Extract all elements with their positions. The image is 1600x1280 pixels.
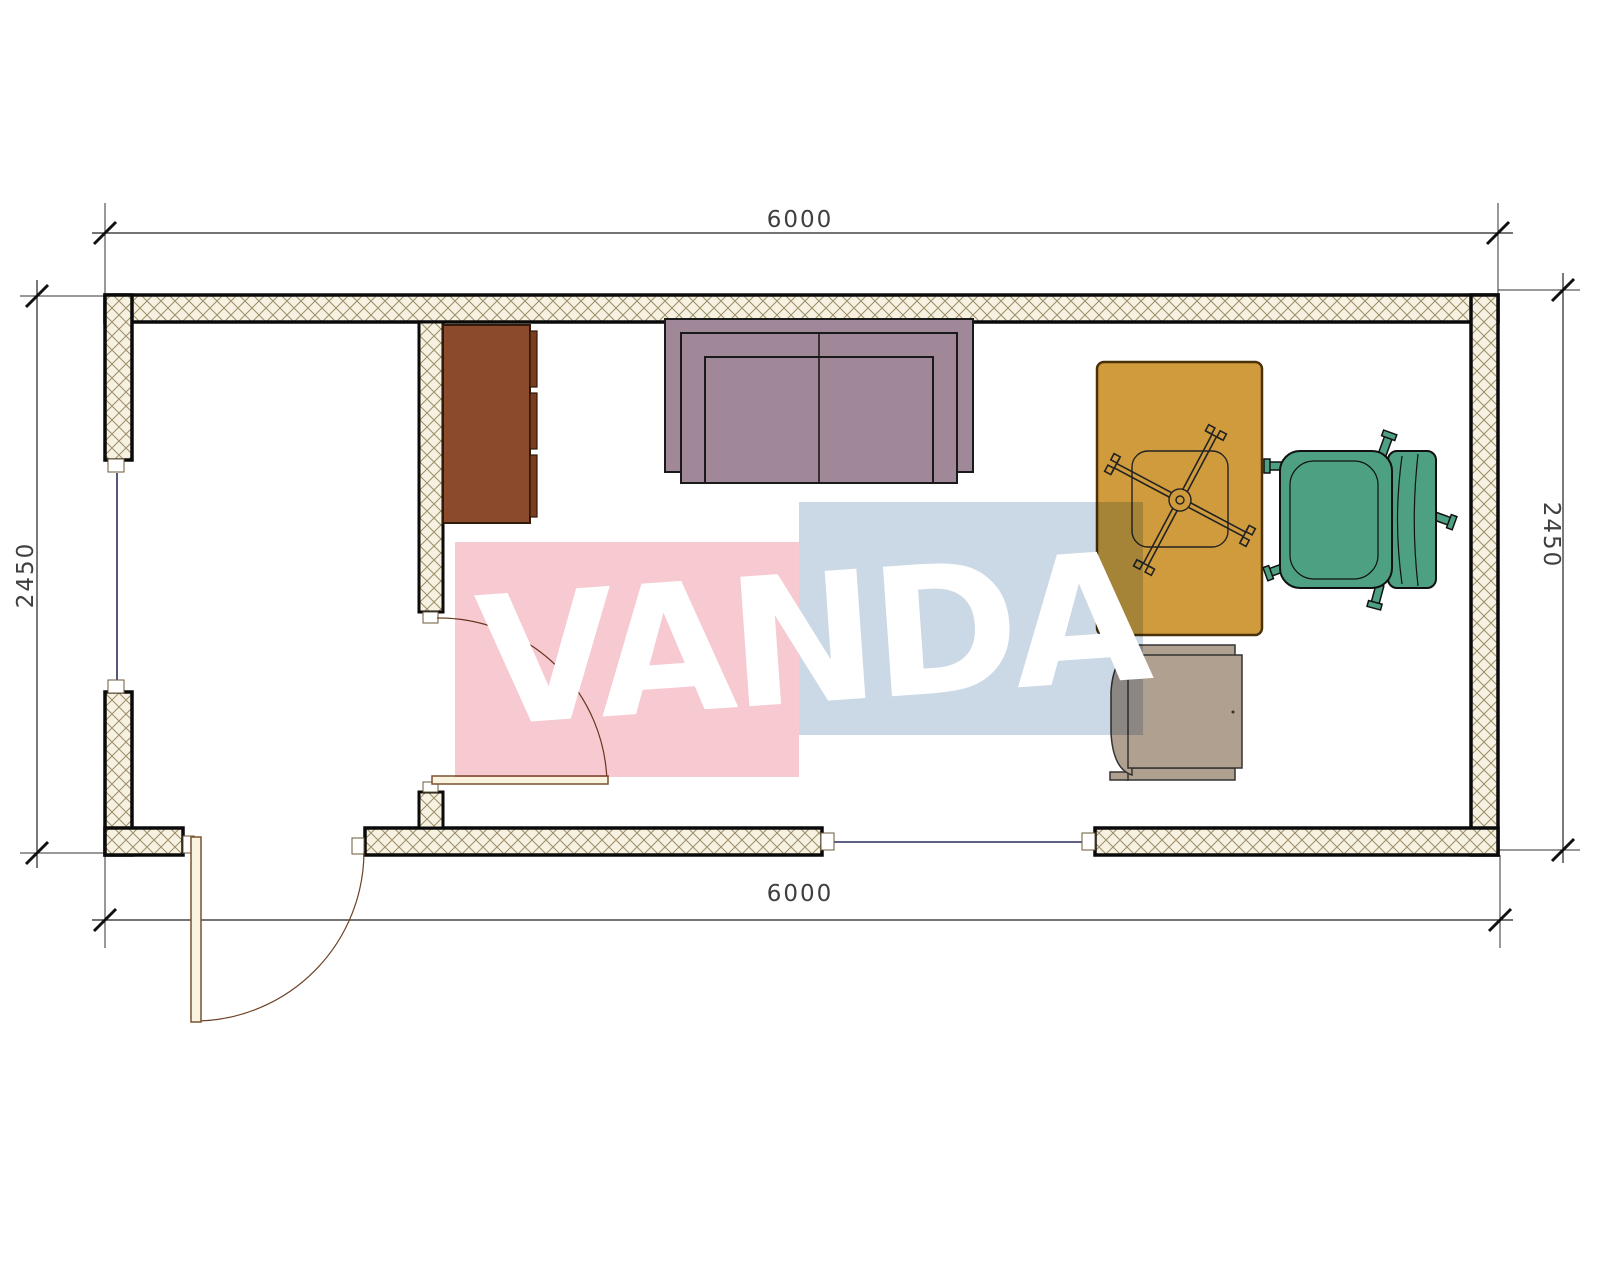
door-jamb (352, 838, 364, 854)
bottom-wall-left-stub (105, 828, 183, 855)
window-jamb (1082, 833, 1095, 850)
partition-wall (419, 322, 443, 612)
window-jamb (108, 459, 124, 472)
floor-plan-canvas: VANDA 6000 6000 2450 2450 (0, 0, 1600, 1280)
entry-door-arc (199, 852, 364, 1021)
entry-door-leaf (191, 837, 201, 1022)
cabinet (443, 325, 537, 523)
sofa (665, 319, 973, 483)
bottom-wall-right (1095, 828, 1498, 855)
side-chair-bottom-rail (1127, 768, 1235, 780)
bottom-wall-middle (365, 828, 822, 855)
armchair-backrest (1388, 451, 1436, 588)
dimension-label-left: 2450 (13, 542, 39, 609)
dimension-label-right: 2450 (1538, 502, 1564, 569)
side-chair-bottom-stub (1110, 772, 1128, 780)
watermark-text: VANDA (472, 529, 1151, 753)
armchair (1263, 430, 1457, 610)
interior-door-leaf (432, 776, 608, 784)
right-wall (1471, 295, 1498, 855)
dimension-label-top: 6000 (767, 207, 834, 233)
top-wall (105, 295, 1498, 322)
door-jamb (423, 612, 438, 623)
left-wall-upper (105, 295, 132, 460)
window-jamb (821, 833, 834, 850)
partition-wall-stub (419, 792, 443, 828)
dimension-label-bottom: 6000 (767, 881, 834, 907)
window-jamb (108, 680, 124, 693)
